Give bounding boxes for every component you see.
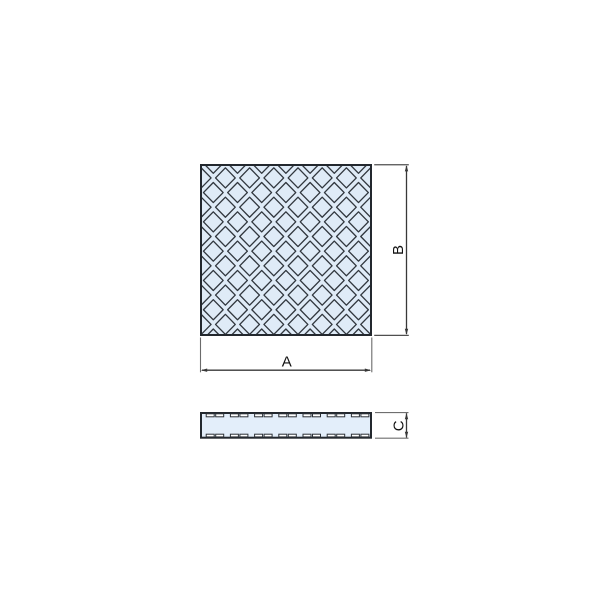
svg-text:B: B [390,245,407,255]
svg-text:C: C [390,420,407,431]
svg-text:A: A [282,354,292,371]
